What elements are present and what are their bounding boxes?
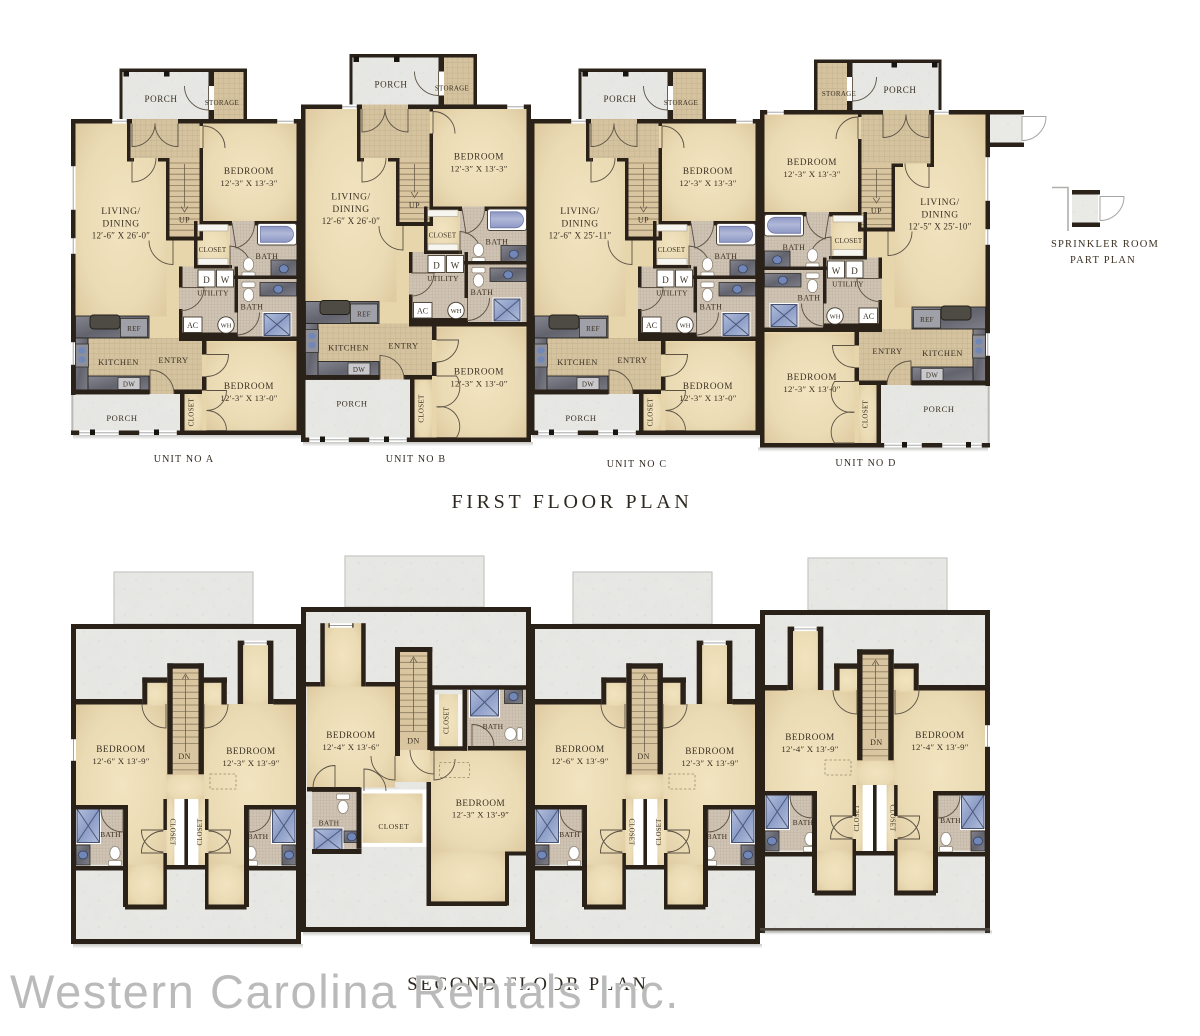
svg-text:AC: AC: [417, 307, 428, 316]
svg-text:BATH: BATH: [793, 818, 814, 827]
svg-text:W: W: [680, 275, 689, 285]
svg-text:BEDROOM: BEDROOM: [787, 372, 837, 382]
svg-text:12′-3″ X 13′-3″: 12′-3″ X 13′-3″: [220, 178, 277, 188]
svg-text:BEDROOM: BEDROOM: [685, 746, 734, 756]
svg-text:STORAGE: STORAGE: [822, 90, 856, 98]
svg-text:CLOSET: CLOSET: [862, 399, 870, 428]
svg-text:12′-3″ X 13′-9″: 12′-3″ X 13′-9″: [681, 758, 738, 768]
svg-text:DINING: DINING: [561, 220, 598, 230]
svg-text:UP: UP: [871, 207, 882, 216]
svg-text:BEDROOM: BEDROOM: [683, 166, 733, 176]
svg-text:UNIT NO C: UNIT NO C: [607, 459, 668, 470]
svg-text:12′-3″ X 13′-0″: 12′-3″ X 13′-0″: [220, 393, 277, 403]
svg-text:D: D: [851, 266, 858, 276]
svg-text:AC: AC: [863, 312, 874, 321]
svg-text:BATH: BATH: [471, 288, 494, 297]
svg-text:UNIT NO D: UNIT NO D: [835, 458, 896, 469]
svg-text:KITCHEN: KITCHEN: [98, 357, 139, 367]
svg-text:REF: REF: [920, 316, 934, 324]
svg-text:BATH: BATH: [707, 832, 728, 841]
svg-text:12′-3″ X 13′-0″: 12′-3″ X 13′-0″: [783, 384, 840, 394]
svg-text:WH: WH: [680, 323, 691, 330]
svg-text:12′-3″ X 13′-3″: 12′-3″ X 13′-3″: [783, 169, 840, 179]
svg-text:WH: WH: [451, 308, 462, 315]
svg-text:DN: DN: [870, 738, 883, 747]
svg-text:REF: REF: [127, 325, 141, 333]
svg-text:BEDROOM: BEDROOM: [454, 152, 504, 162]
svg-text:STORAGE: STORAGE: [205, 99, 239, 107]
svg-text:PORCH: PORCH: [336, 399, 367, 409]
svg-text:BEDROOM: BEDROOM: [224, 166, 274, 176]
svg-text:12′-4″ X 13′-9″: 12′-4″ X 13′-9″: [911, 742, 968, 752]
svg-text:CLOSET: CLOSET: [647, 398, 655, 427]
svg-text:12′-6″ X 26′-0″: 12′-6″ X 26′-0″: [92, 231, 150, 241]
svg-text:PORCH: PORCH: [883, 85, 916, 95]
svg-text:12′-6″ X 13′-9″: 12′-6″ X 13′-9″: [551, 756, 608, 766]
svg-text:DN: DN: [178, 752, 191, 761]
svg-text:DINING: DINING: [921, 211, 958, 221]
svg-text:ENTRY: ENTRY: [872, 346, 902, 356]
svg-text:KITCHEN: KITCHEN: [557, 357, 598, 367]
svg-text:CLOSET: CLOSET: [378, 822, 409, 831]
svg-text:DINING: DINING: [102, 220, 139, 230]
svg-text:REF: REF: [586, 325, 600, 333]
svg-text:12′-3″ X 13′-9″: 12′-3″ X 13′-9″: [222, 758, 279, 768]
svg-text:SPRINKLER ROOM: SPRINKLER ROOM: [1051, 239, 1159, 250]
svg-text:D: D: [433, 261, 440, 271]
svg-text:BATH: BATH: [241, 303, 264, 312]
svg-text:PORCH: PORCH: [374, 80, 407, 90]
svg-text:UTILITY: UTILITY: [656, 289, 688, 298]
svg-text:BATH: BATH: [700, 303, 723, 312]
svg-text:12′-3″ X 13′-0″: 12′-3″ X 13′-0″: [679, 393, 736, 403]
svg-text:DN: DN: [407, 737, 420, 746]
svg-text:UTILITY: UTILITY: [832, 280, 864, 289]
svg-text:W: W: [832, 266, 841, 276]
svg-text:CLOSET: CLOSET: [854, 804, 861, 832]
svg-text:CLOSET: CLOSET: [835, 237, 863, 245]
svg-text:12′-5″ X 25′-10″: 12′-5″ X 25′-10″: [908, 222, 971, 232]
svg-text:LIVING/: LIVING/: [101, 207, 141, 217]
svg-text:BEDROOM: BEDROOM: [326, 730, 375, 740]
svg-text:PORCH: PORCH: [106, 413, 137, 423]
svg-text:12′-4″ X 13′-9″: 12′-4″ X 13′-9″: [781, 744, 838, 754]
svg-text:D: D: [662, 275, 669, 285]
svg-text:UTILITY: UTILITY: [197, 289, 229, 298]
svg-text:DW: DW: [123, 381, 135, 389]
svg-text:12′-3″ X 13′-9″: 12′-3″ X 13′-9″: [452, 810, 509, 820]
svg-text:CLOSET: CLOSET: [199, 246, 227, 254]
svg-text:CLOSET: CLOSET: [169, 819, 176, 847]
svg-text:12′-3″ X 13′-0″: 12′-3″ X 13′-0″: [450, 379, 507, 389]
svg-text:12′-6″ X 26′-0″: 12′-6″ X 26′-0″: [322, 216, 380, 226]
svg-text:UP: UP: [638, 216, 649, 225]
svg-text:D: D: [203, 275, 210, 285]
svg-text:ENTRY: ENTRY: [388, 341, 418, 351]
svg-text:WH: WH: [830, 314, 841, 321]
svg-text:CLOSET: CLOSET: [418, 394, 426, 423]
svg-text:BATH: BATH: [248, 832, 269, 841]
svg-text:CLOSET: CLOSET: [188, 398, 196, 427]
svg-text:PORCH: PORCH: [144, 94, 177, 104]
svg-text:12′-3″ X 13′-3″: 12′-3″ X 13′-3″: [679, 178, 736, 188]
svg-text:UTILITY: UTILITY: [427, 274, 459, 283]
svg-text:CLOSET: CLOSET: [444, 706, 451, 734]
svg-text:ENTRY: ENTRY: [158, 355, 188, 365]
svg-text:ENTRY: ENTRY: [617, 355, 647, 365]
svg-text:BEDROOM: BEDROOM: [226, 746, 275, 756]
svg-text:BEDROOM: BEDROOM: [785, 732, 834, 742]
svg-text:BEDROOM: BEDROOM: [555, 744, 604, 754]
svg-text:AC: AC: [187, 321, 198, 330]
svg-text:KITCHEN: KITCHEN: [328, 343, 369, 353]
svg-text:REF: REF: [357, 311, 371, 319]
svg-text:PORCH: PORCH: [923, 404, 954, 414]
svg-text:CLOSET: CLOSET: [656, 818, 663, 846]
svg-text:DW: DW: [353, 366, 365, 374]
svg-text:KITCHEN: KITCHEN: [922, 348, 963, 358]
svg-text:CLOSET: CLOSET: [628, 819, 635, 847]
svg-text:LIVING/: LIVING/: [331, 193, 371, 203]
svg-text:12′-6″ X 13′-9″: 12′-6″ X 13′-9″: [92, 756, 149, 766]
svg-text:UNIT NO A: UNIT NO A: [154, 454, 215, 465]
svg-text:FIRST FLOOR PLAN: FIRST FLOOR PLAN: [451, 491, 692, 513]
svg-text:12′-6″ X 25′-11″: 12′-6″ X 25′-11″: [549, 231, 612, 241]
svg-text:12′-3″ X 13′-3″: 12′-3″ X 13′-3″: [450, 164, 507, 174]
svg-text:UNIT NO B: UNIT NO B: [386, 454, 447, 465]
svg-text:DN: DN: [637, 752, 650, 761]
svg-text:BEDROOM: BEDROOM: [96, 744, 145, 754]
svg-text:BEDROOM: BEDROOM: [454, 367, 504, 377]
svg-text:AC: AC: [646, 321, 657, 330]
svg-text:CLOSET: CLOSET: [429, 232, 457, 240]
svg-text:STORAGE: STORAGE: [664, 99, 698, 107]
svg-text:LIVING/: LIVING/: [560, 207, 600, 217]
svg-text:W: W: [451, 261, 460, 271]
svg-text:DW: DW: [582, 381, 594, 389]
svg-text:DINING: DINING: [332, 205, 369, 215]
svg-text:BEDROOM: BEDROOM: [456, 798, 505, 808]
svg-text:UP: UP: [179, 216, 190, 225]
svg-text:UP: UP: [409, 201, 420, 210]
svg-text:CLOSET: CLOSET: [889, 805, 896, 833]
svg-text:W: W: [221, 275, 230, 285]
svg-text:BEDROOM: BEDROOM: [787, 157, 837, 167]
svg-text:BATH: BATH: [319, 819, 340, 828]
svg-text:STORAGE: STORAGE: [435, 85, 469, 93]
svg-text:BEDROOM: BEDROOM: [224, 381, 274, 391]
svg-text:BEDROOM: BEDROOM: [683, 381, 733, 391]
svg-text:CLOSET: CLOSET: [197, 818, 204, 846]
svg-text:Western Carolina Rentals Inc.: Western Carolina Rentals Inc.: [10, 965, 680, 1018]
svg-text:WH: WH: [221, 323, 232, 330]
svg-text:BEDROOM: BEDROOM: [915, 730, 964, 740]
svg-text:PORCH: PORCH: [603, 94, 636, 104]
svg-text:12′-4″ X 13′-6″: 12′-4″ X 13′-6″: [322, 742, 379, 752]
svg-text:BATH: BATH: [798, 294, 821, 303]
svg-text:LIVING/: LIVING/: [920, 198, 960, 208]
svg-text:PORCH: PORCH: [565, 413, 596, 423]
svg-text:DW: DW: [926, 372, 938, 380]
svg-text:PART PLAN: PART PLAN: [1070, 255, 1136, 266]
svg-text:CLOSET: CLOSET: [658, 246, 686, 254]
